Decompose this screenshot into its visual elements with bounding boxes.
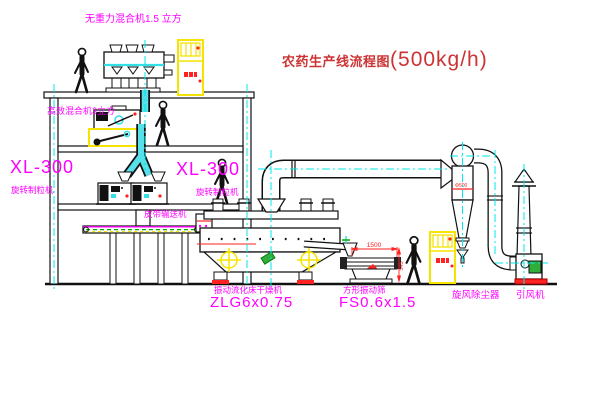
induced-draft-fan [510, 254, 547, 284]
square-vibrating-sieve: 1500 545 [340, 236, 405, 283]
label-granulator-left-model: XL-300 [10, 158, 74, 176]
label-belt-conveyor: 皮带输送机 [144, 210, 187, 219]
sieve-height-dimension: 545 [399, 261, 405, 270]
label-dryer-model: ZLG6x0.75 [210, 295, 293, 310]
label-granulator-left-name: 旋转制粒机 [11, 186, 54, 195]
label-top-mixer: 无重力混合机1.5 立方 [85, 15, 182, 25]
gravity-free-mixer [104, 45, 174, 92]
label-sieve-model: FS0.6x1.5 [339, 295, 416, 310]
drawing-title-capacity: (500kg/h) [390, 48, 488, 71]
belt-conveyor [83, 226, 200, 284]
dryer-to-sieve-chute [304, 244, 349, 247]
drawing-title: 农药生产线流程图(500kg/h) [282, 48, 488, 72]
control-cabinet-cyclone [430, 232, 455, 283]
main-exhaust-duct [271, 160, 441, 213]
drawing-title-text: 农药生产线流程图 [282, 54, 390, 69]
label-floor2-mixer: 高效混合机3立方 [47, 107, 115, 116]
sieve-length-dimension: 1500 [367, 242, 382, 249]
label-granulator-center-name: 旋转制粒机 [196, 188, 239, 197]
label-granulator-center-model: XL-300 [176, 160, 240, 178]
label-cyclone: 旋风除尘器 [452, 291, 500, 301]
cyclone-outlet-duct [474, 156, 520, 263]
cad-drawing-canvas: 1500 545 Φ500 [0, 0, 600, 403]
cyclone-diameter-dimension: Φ500 [455, 183, 468, 189]
control-cabinet-top [178, 40, 203, 95]
label-fan: 引风机 [516, 291, 545, 301]
